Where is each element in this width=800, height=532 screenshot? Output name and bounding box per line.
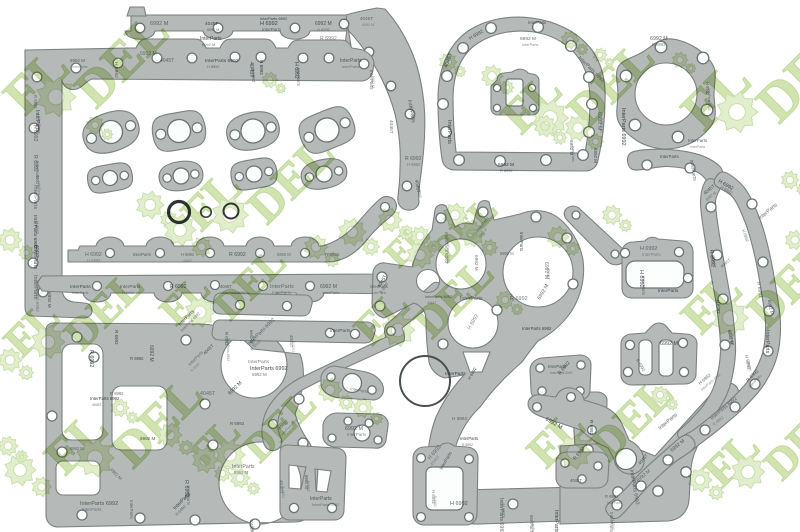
svg-text:InterParts 6992: InterParts 6992 bbox=[531, 521, 535, 532]
svg-text:4045T: 4045T bbox=[35, 245, 40, 258]
svg-text:6992 M: 6992 M bbox=[371, 76, 375, 88]
svg-text:InterParts 6992: InterParts 6992 bbox=[620, 108, 626, 146]
svg-text:InterParts: InterParts bbox=[446, 120, 452, 144]
svg-text:InterParts: InterParts bbox=[296, 68, 301, 86]
svg-text:R 6992: R 6992 bbox=[291, 341, 295, 352]
svg-text:R 6992: R 6992 bbox=[500, 168, 513, 173]
svg-text:4045T: 4045T bbox=[570, 478, 582, 483]
svg-text:H 6992: H 6992 bbox=[407, 162, 421, 167]
svg-text:InterParts: InterParts bbox=[528, 20, 546, 25]
svg-text:InterParts: InterParts bbox=[251, 526, 255, 532]
svg-text:InterParts: InterParts bbox=[347, 432, 367, 437]
svg-text:H 6992: H 6992 bbox=[207, 64, 220, 69]
svg-text:InterParts: InterParts bbox=[82, 507, 102, 512]
svg-text:6992 M: 6992 M bbox=[660, 341, 678, 347]
svg-text:H 6992: H 6992 bbox=[611, 518, 615, 530]
svg-text:InterParts: InterParts bbox=[641, 276, 646, 296]
svg-text:InterParts: InterParts bbox=[571, 146, 575, 162]
svg-text:H 6992: H 6992 bbox=[35, 221, 40, 235]
svg-text:InterParts: InterParts bbox=[690, 145, 705, 149]
svg-text:InterParts: InterParts bbox=[262, 27, 282, 32]
svg-text:InterParts: InterParts bbox=[688, 138, 708, 143]
svg-text:4045T: 4045T bbox=[205, 21, 218, 26]
svg-text:R 6992: R 6992 bbox=[110, 391, 124, 396]
svg-text:H 6992: H 6992 bbox=[450, 501, 468, 507]
svg-text:6992 M: 6992 M bbox=[593, 148, 598, 163]
svg-text:H 6992: H 6992 bbox=[501, 504, 506, 518]
svg-text:R 6992: R 6992 bbox=[130, 356, 144, 361]
svg-text:R 6992: R 6992 bbox=[605, 494, 619, 499]
svg-text:InterParts: InterParts bbox=[658, 288, 679, 293]
svg-text:R 6992: R 6992 bbox=[320, 36, 337, 42]
svg-text:InterParts: InterParts bbox=[607, 501, 622, 505]
svg-text:R 6992: R 6992 bbox=[281, 486, 285, 498]
svg-text:InterParts: InterParts bbox=[248, 359, 270, 365]
svg-text:InterParts: InterParts bbox=[460, 436, 478, 441]
svg-text:6992 M: 6992 M bbox=[520, 36, 536, 42]
svg-text:InterParts 6992: InterParts 6992 bbox=[522, 326, 552, 331]
svg-text:InterParts: InterParts bbox=[37, 181, 41, 196]
svg-text:InterParts: InterParts bbox=[133, 252, 151, 257]
svg-text:InterParts: InterParts bbox=[272, 290, 292, 295]
svg-text:InterParts 6992: InterParts 6992 bbox=[312, 502, 340, 507]
svg-text:H 6992: H 6992 bbox=[259, 60, 264, 75]
svg-text:InterParts: InterParts bbox=[445, 371, 466, 377]
svg-text:4045T: 4045T bbox=[546, 268, 551, 280]
svg-text:R 6992: R 6992 bbox=[652, 42, 666, 47]
svg-text:6992 M: 6992 M bbox=[362, 23, 374, 27]
svg-text:InterParts: InterParts bbox=[660, 154, 679, 159]
svg-text:4045T: 4045T bbox=[183, 259, 192, 263]
svg-text:H 6992: H 6992 bbox=[87, 258, 101, 263]
svg-text:4045T: 4045T bbox=[388, 120, 394, 134]
svg-text:InterParts: InterParts bbox=[553, 510, 559, 532]
svg-text:R 6992: R 6992 bbox=[433, 496, 437, 507]
svg-text:6992 M: 6992 M bbox=[252, 372, 267, 377]
svg-text:H 6992: H 6992 bbox=[181, 252, 195, 257]
svg-text:R 6992: R 6992 bbox=[462, 443, 473, 447]
svg-text:H 6992: H 6992 bbox=[452, 416, 468, 421]
svg-text:6992 M: 6992 M bbox=[148, 345, 154, 362]
svg-text:InterParts 6992: InterParts 6992 bbox=[226, 338, 230, 361]
svg-text:InterParts: InterParts bbox=[522, 43, 539, 47]
svg-text:4045T: 4045T bbox=[360, 16, 373, 21]
svg-text:InterParts: InterParts bbox=[764, 330, 770, 354]
svg-text:InterParts: InterParts bbox=[129, 500, 134, 519]
svg-text:4045T: 4045T bbox=[92, 403, 102, 407]
svg-text:H 6992: H 6992 bbox=[306, 481, 310, 492]
svg-text:H 6992: H 6992 bbox=[317, 27, 331, 32]
svg-text:InterParts: InterParts bbox=[519, 232, 524, 252]
svg-text:6992 M: 6992 M bbox=[207, 28, 219, 32]
svg-text:6992 M: 6992 M bbox=[500, 251, 514, 256]
svg-text:InterParts: InterParts bbox=[642, 252, 661, 257]
svg-text:InterParts 6992: InterParts 6992 bbox=[260, 16, 288, 21]
svg-text:InterParts: InterParts bbox=[342, 64, 359, 69]
svg-text:6992 M: 6992 M bbox=[202, 42, 215, 47]
svg-text:InterParts: InterParts bbox=[322, 290, 339, 295]
svg-text:InterParts: InterParts bbox=[330, 328, 351, 333]
svg-text:H 6992: H 6992 bbox=[251, 68, 256, 83]
svg-text:InterParts: InterParts bbox=[70, 284, 91, 290]
